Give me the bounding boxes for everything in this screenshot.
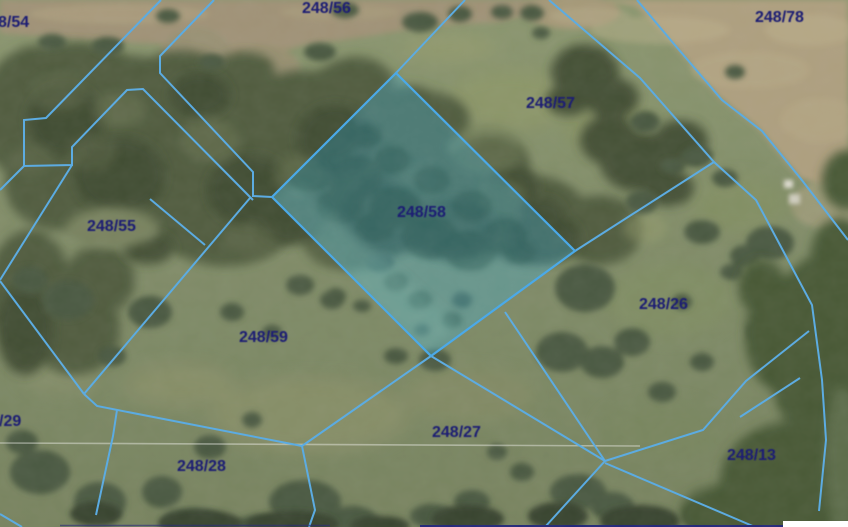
svg-text:248/28: 248/28 bbox=[177, 458, 226, 475]
svg-text:248/13: 248/13 bbox=[727, 447, 776, 464]
svg-text:248/55: 248/55 bbox=[87, 218, 136, 235]
svg-text:/29: /29 bbox=[0, 413, 21, 430]
svg-text:248/57: 248/57 bbox=[526, 95, 575, 112]
svg-text:248/26: 248/26 bbox=[639, 296, 688, 313]
svg-text:248/27: 248/27 bbox=[432, 424, 481, 441]
svg-text:8/54: 8/54 bbox=[0, 14, 29, 31]
svg-text:248/78: 248/78 bbox=[755, 9, 804, 26]
svg-text:248/59: 248/59 bbox=[239, 329, 288, 346]
svg-text:248/58: 248/58 bbox=[397, 204, 446, 221]
svg-text:248/56: 248/56 bbox=[302, 0, 351, 17]
